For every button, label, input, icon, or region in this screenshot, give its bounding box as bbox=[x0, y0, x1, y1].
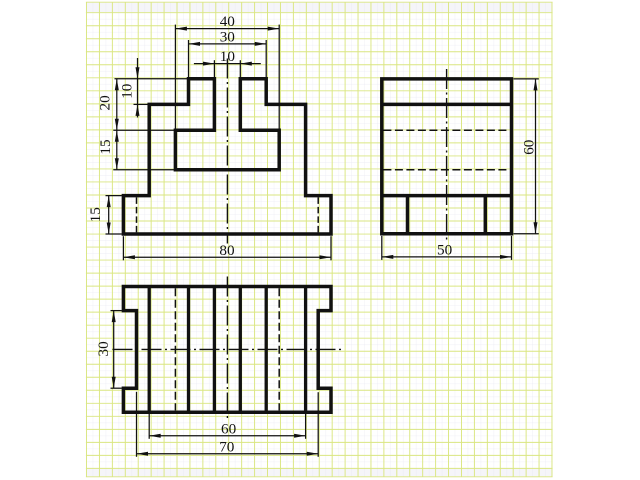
svg-text:30: 30 bbox=[220, 29, 236, 46]
svg-text:20: 20 bbox=[97, 95, 114, 111]
svg-text:60: 60 bbox=[221, 420, 237, 437]
svg-text:50: 50 bbox=[437, 242, 453, 259]
svg-text:15: 15 bbox=[97, 139, 114, 154]
svg-text:15: 15 bbox=[87, 207, 104, 222]
svg-text:30: 30 bbox=[95, 341, 112, 357]
svg-text:70: 70 bbox=[219, 438, 235, 455]
svg-text:60: 60 bbox=[521, 139, 538, 155]
svg-text:10: 10 bbox=[220, 48, 236, 65]
svg-text:10: 10 bbox=[119, 83, 136, 99]
svg-text:80: 80 bbox=[219, 242, 235, 259]
